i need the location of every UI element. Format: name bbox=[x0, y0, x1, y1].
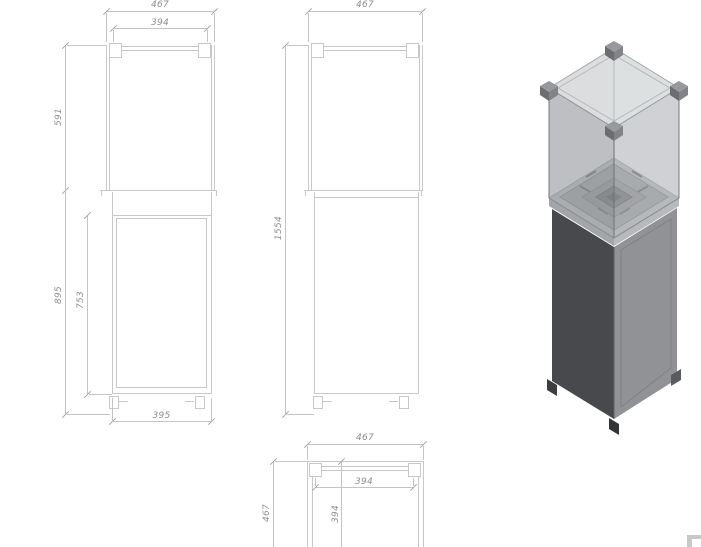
cabinet-side-left bbox=[112, 192, 113, 393]
dim-top-width-outer: 467 bbox=[307, 433, 423, 443]
dim-line bbox=[315, 487, 413, 488]
technical-drawing-canvas: 467 394 591 895 753 bbox=[0, 0, 701, 547]
extension-line bbox=[287, 45, 308, 46]
dim-top-depth-outer: 467 bbox=[262, 493, 272, 533]
foot-left bbox=[109, 396, 119, 409]
dim-line bbox=[341, 461, 342, 547]
cabinet-side-right bbox=[211, 192, 212, 393]
dim-side-height-total: 1554 bbox=[274, 208, 284, 248]
foot-bracket bbox=[323, 401, 332, 402]
glass-edge-outer-right bbox=[214, 45, 215, 190]
plan-side-left bbox=[307, 461, 308, 547]
cabinet-top-line bbox=[100, 190, 217, 191]
extension-line bbox=[67, 414, 110, 415]
top-bar-line bbox=[324, 50, 406, 51]
extension-line bbox=[307, 446, 308, 460]
dim-front-height-upper: 591 bbox=[54, 102, 64, 132]
extension-line bbox=[422, 13, 423, 42]
extension-line bbox=[207, 30, 208, 42]
dim-side-width-outer: 467 bbox=[308, 0, 422, 10]
foot-bracket bbox=[185, 401, 194, 402]
plan-front-edge bbox=[307, 461, 423, 462]
corner-post-left bbox=[109, 43, 122, 58]
render-glass-box bbox=[549, 48, 679, 238]
top-bar-line bbox=[324, 46, 406, 47]
dim-front-door-height: 753 bbox=[76, 285, 86, 315]
dim-line bbox=[308, 11, 422, 12]
dim-line bbox=[106, 11, 214, 12]
plan-side-right bbox=[423, 461, 424, 547]
dim-front-base-width: 395 bbox=[112, 411, 211, 421]
dim-line bbox=[307, 444, 423, 445]
dim-line bbox=[273, 461, 274, 547]
extension-line bbox=[112, 398, 113, 422]
glass-edge-inner-left bbox=[311, 45, 312, 190]
door-top-line bbox=[112, 215, 212, 216]
top-bar-line bbox=[322, 470, 408, 471]
foot-right bbox=[195, 396, 205, 409]
dim-line bbox=[87, 215, 88, 394]
foot-right bbox=[399, 396, 409, 409]
corner-post-left bbox=[309, 463, 322, 477]
extension-line bbox=[413, 478, 414, 486]
foot-left bbox=[313, 396, 323, 409]
dim-front-width-inner: 394 bbox=[113, 18, 207, 28]
isometric-render bbox=[500, 35, 700, 445]
glass-edge-outer-right bbox=[422, 45, 423, 190]
cabinet-top-line bbox=[304, 190, 423, 191]
cabinet-plate-line bbox=[314, 197, 418, 198]
top-bar-line bbox=[122, 50, 198, 51]
door-panel-outline bbox=[116, 218, 207, 388]
top-bar-line bbox=[122, 46, 198, 47]
glass-edge-inner-left bbox=[109, 45, 110, 190]
cabinet-side-left bbox=[314, 192, 315, 393]
cabinet-top-tab bbox=[305, 190, 306, 196]
dim-line bbox=[65, 45, 66, 190]
plan-glass-right bbox=[418, 477, 419, 547]
dim-line bbox=[112, 421, 211, 422]
corner-post-right bbox=[406, 43, 419, 58]
dim-top-width-inner: 394 bbox=[315, 477, 413, 487]
dim-line bbox=[113, 28, 207, 29]
extension-line bbox=[214, 13, 215, 42]
glass-edge-outer-left bbox=[308, 45, 309, 190]
dim-front-width-outer: 467 bbox=[106, 0, 214, 10]
top-bar-line bbox=[322, 466, 408, 467]
extension-line bbox=[211, 398, 212, 422]
glass-edge-inner-right bbox=[211, 45, 212, 190]
watermark-stem bbox=[687, 539, 692, 547]
extension-line bbox=[308, 13, 309, 42]
extension-line bbox=[315, 478, 316, 486]
corner-post-left bbox=[311, 43, 324, 58]
extension-line bbox=[423, 446, 424, 460]
dim-top-depth-inner: 394 bbox=[331, 494, 341, 534]
dim-front-height-lower: 895 bbox=[54, 280, 64, 310]
cabinet-dark-face bbox=[552, 209, 614, 419]
cabinet-bottom-line bbox=[314, 393, 419, 394]
extension-line bbox=[67, 45, 106, 46]
dim-line bbox=[285, 45, 286, 414]
cabinet-top-tab bbox=[101, 190, 102, 196]
glass-edge-inner-right bbox=[419, 45, 420, 190]
dim-line bbox=[65, 190, 66, 414]
foot-bracket bbox=[389, 401, 398, 402]
cabinet-top-tab bbox=[421, 190, 422, 196]
cabinet-bottom-line bbox=[112, 393, 212, 394]
glass-edge-outer-left bbox=[106, 45, 107, 190]
extension-line bbox=[275, 461, 307, 462]
extension-line bbox=[89, 394, 112, 395]
cabinet-side-right bbox=[418, 192, 419, 393]
render-foot bbox=[609, 418, 619, 435]
extension-line bbox=[287, 414, 314, 415]
corner-post-right bbox=[408, 463, 421, 477]
foot-bracket bbox=[119, 401, 128, 402]
extension-line bbox=[106, 13, 107, 42]
cabinet-top-tab bbox=[216, 190, 217, 196]
corner-post-right bbox=[198, 43, 211, 58]
extension-line bbox=[113, 30, 114, 42]
